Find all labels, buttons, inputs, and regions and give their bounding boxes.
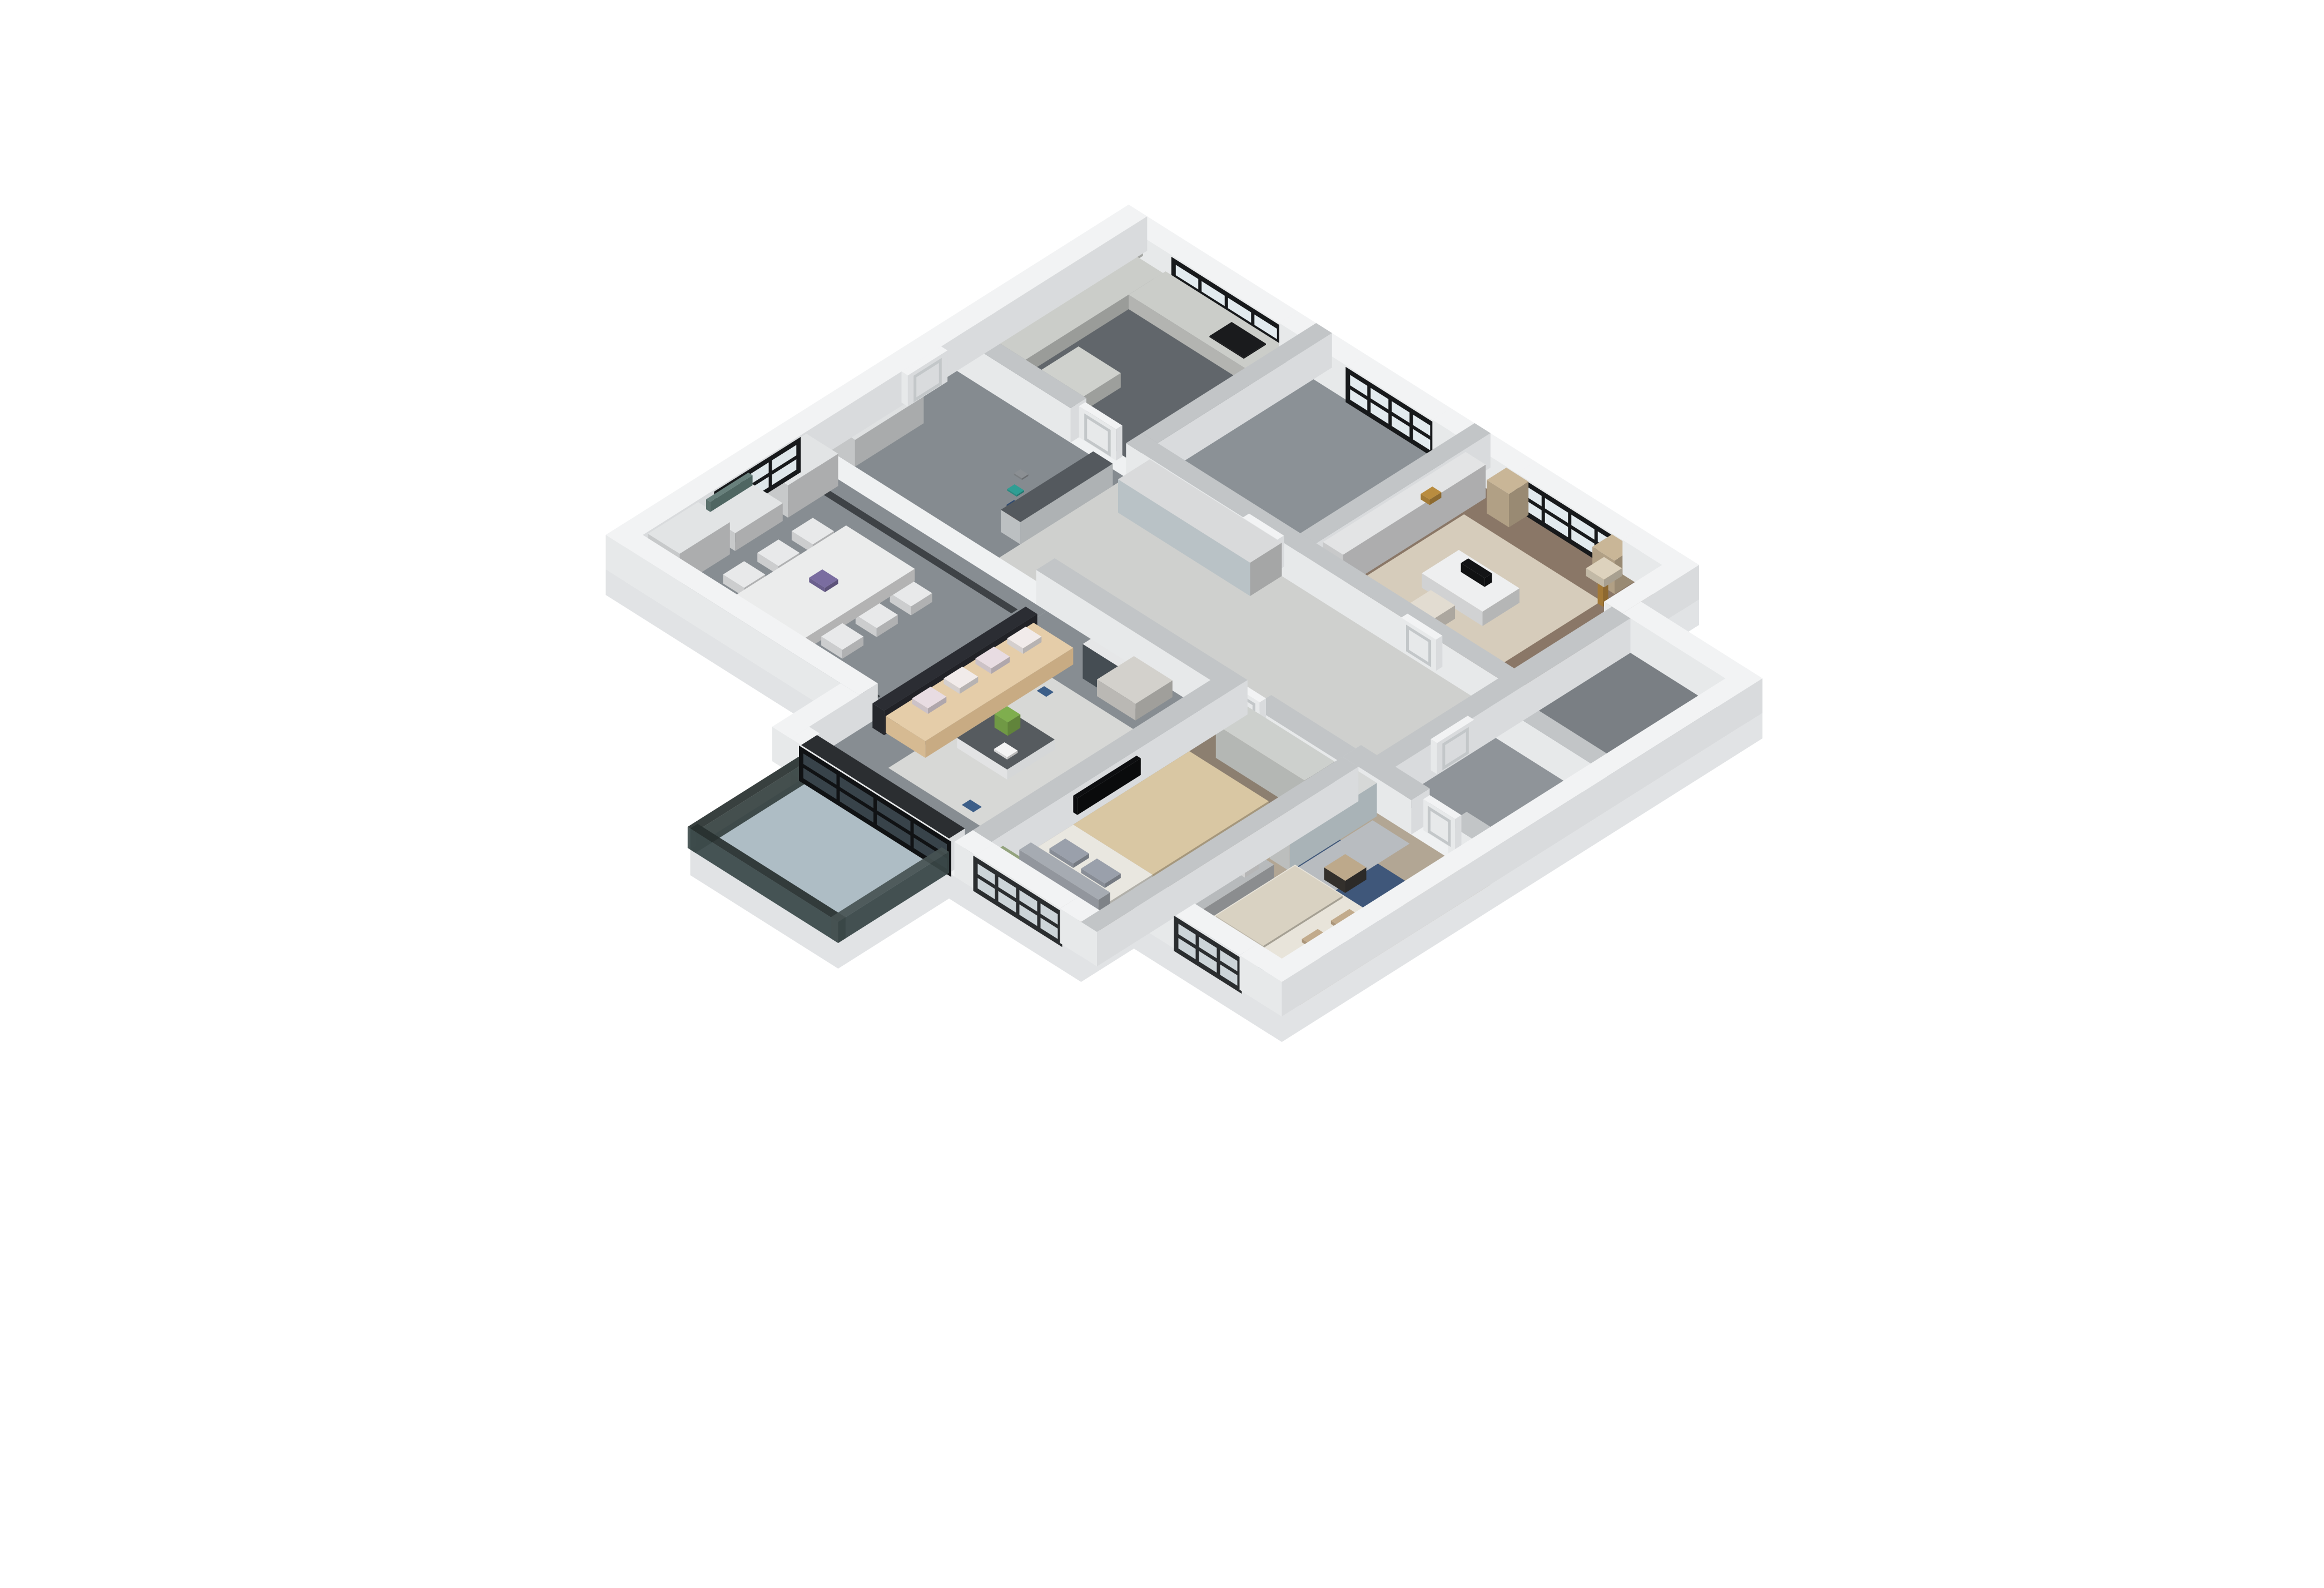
apartment-3d-floorplan-render bbox=[0, 0, 2324, 1588]
floorplan-canvas bbox=[0, 0, 2324, 1588]
